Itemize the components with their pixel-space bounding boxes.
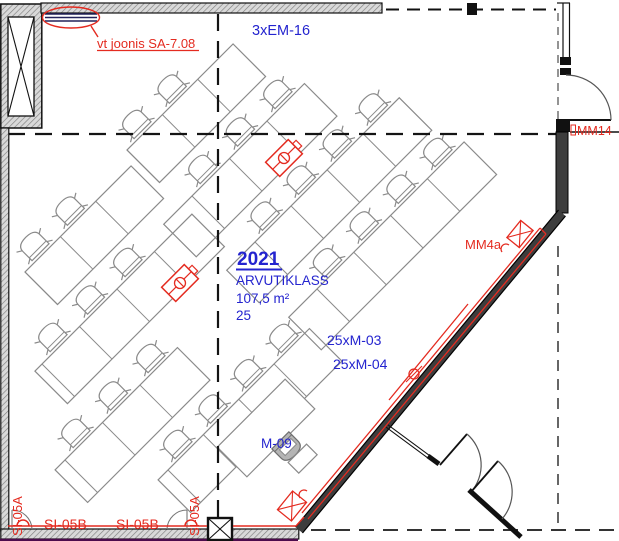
teacher-desk-label: M-09: [261, 436, 292, 451]
floor-plan-canvas: vt joonis SA-7.08 3xEM-16 2021 ARVUTIKLA…: [0, 0, 619, 541]
reference-note-label: vt joonis SA-7.08: [97, 36, 195, 51]
chair-icon: [316, 123, 355, 162]
shaft: [1, 4, 42, 128]
chair-icon: [157, 423, 196, 462]
riser-label-right: SI-05A: [187, 496, 202, 536]
chair-icon: [49, 190, 88, 229]
equipment-label-2: 25xM-04: [333, 356, 388, 372]
valve-icon: [277, 491, 306, 521]
room-number-label: 2021: [237, 249, 280, 270]
mm14-marker-icon: [571, 125, 576, 135]
top-wall: [41, 3, 382, 13]
wall-device-label: MM4a: [465, 237, 502, 252]
chair-icon: [32, 316, 71, 355]
room-seats-label: 25: [236, 308, 251, 323]
pipe-bump: [501, 244, 509, 252]
chair-icon: [244, 195, 283, 234]
teacher-desk: [217, 379, 317, 477]
chair-icon: [55, 412, 94, 451]
chair-icon: [343, 205, 382, 244]
equipment-label-1: 25xM-03: [327, 332, 382, 348]
chair-icon: [116, 103, 155, 142]
room-area-label: 107,5 m²: [236, 291, 290, 306]
lintel-detail: [45, 14, 97, 21]
chair-icon: [151, 68, 190, 107]
mm14-label-group: MM14: [571, 124, 612, 138]
double-door-partition: [386, 425, 521, 537]
desk-row: [18, 197, 224, 403]
wall-block-top: [467, 3, 477, 15]
bottom-pipe-label-1: SI-05B: [44, 516, 87, 532]
room-name-label: ARVUTIKLASS: [236, 273, 329, 288]
top-electrical-label: 3xEM-16: [252, 23, 310, 39]
chair-icon: [263, 317, 302, 356]
chair-icon: [130, 337, 169, 376]
door-leaf: [440, 434, 481, 492]
bottom-pipe-label-2: SI-05B: [116, 516, 159, 532]
chair-icon: [380, 168, 419, 207]
desk-row: [8, 149, 164, 305]
chair-icon: [192, 388, 231, 427]
right-door-label: MM14: [577, 124, 612, 138]
valve-icon: [507, 220, 533, 247]
floor-box-icon: [162, 261, 202, 301]
right-wall-mid: [556, 132, 568, 213]
chair-icon: [227, 353, 266, 392]
desk-row: [38, 331, 210, 503]
riser-label-left: SI-05A: [10, 496, 25, 536]
desk-row: [272, 125, 497, 350]
chair-icon: [69, 279, 108, 318]
floor-plan-drawing: vt joonis SA-7.08 3xEM-16 2021 ARVUTIKLA…: [0, 0, 619, 541]
chair-icon: [92, 375, 131, 414]
chair-icon: [352, 87, 391, 126]
chair-icon: [107, 241, 146, 280]
column: [208, 518, 232, 540]
chair-icon: [14, 225, 53, 264]
left-wall: [1, 128, 9, 531]
chair-icon: [417, 131, 456, 170]
right-wall-upper: [557, 3, 571, 75]
